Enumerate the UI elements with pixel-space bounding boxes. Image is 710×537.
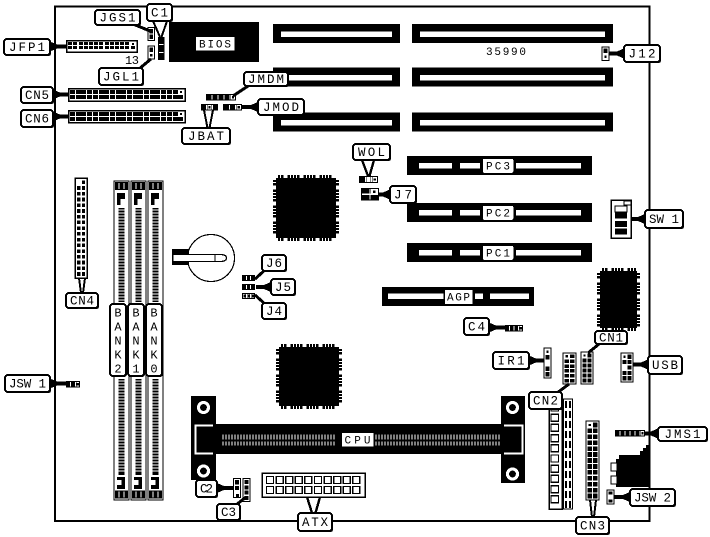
svg-text:CN2: CN2 [533, 395, 558, 409]
svg-text:ATX: ATX [302, 516, 328, 530]
svg-text:C2: C2 [200, 483, 213, 497]
svg-text:CN5: CN5 [25, 89, 49, 103]
svg-text:2: 2 [114, 363, 121, 377]
svg-text:JBAT: JBAT [188, 130, 224, 144]
svg-text:K: K [150, 349, 158, 363]
svg-text:CPU: CPU [345, 436, 371, 448]
svg-text:JMDM: JMDM [248, 73, 284, 87]
svg-text:J4: J4 [266, 305, 282, 319]
svg-text:JFP1: JFP1 [9, 41, 45, 55]
svg-text:USB: USB [652, 359, 678, 373]
svg-text:J12: J12 [629, 48, 656, 62]
svg-text:A: A [114, 321, 122, 335]
svg-text:PC1: PC1 [486, 249, 510, 261]
svg-text:A: A [132, 321, 140, 335]
svg-text:1: 1 [132, 363, 139, 377]
svg-text:13: 13 [125, 54, 139, 68]
svg-text:CN6: CN6 [25, 113, 49, 127]
svg-text:SW 1: SW 1 [649, 213, 679, 227]
svg-text:N: N [114, 335, 121, 349]
svg-text:N: N [132, 335, 139, 349]
svg-text:B: B [132, 307, 139, 321]
svg-text:JMOD: JMOD [263, 101, 299, 115]
svg-text:JSW 2: JSW 2 [634, 492, 671, 506]
svg-text:C1: C1 [151, 7, 168, 21]
svg-text:WOL: WOL [358, 146, 385, 160]
svg-text:PC3: PC3 [486, 162, 510, 174]
svg-text:K: K [114, 349, 122, 363]
svg-text:K: K [132, 349, 140, 363]
svg-text:B: B [114, 307, 121, 321]
svg-text:35990: 35990 [486, 47, 526, 59]
svg-text:JMS1: JMS1 [665, 428, 701, 442]
svg-text:N: N [150, 335, 157, 349]
svg-text:BIOS: BIOS [199, 40, 231, 52]
svg-text:CN1: CN1 [599, 332, 623, 346]
svg-text:JGS1: JGS1 [100, 12, 136, 26]
svg-text:0: 0 [150, 363, 157, 377]
svg-text:AGP: AGP [447, 293, 470, 305]
svg-text:JGL1: JGL1 [103, 71, 139, 85]
svg-text:B: B [150, 307, 157, 321]
svg-text:JSW 1: JSW 1 [9, 378, 46, 392]
svg-text:C3: C3 [221, 506, 236, 520]
svg-text:CN3: CN3 [580, 520, 605, 534]
svg-text:CN4: CN4 [70, 295, 94, 309]
svg-text:PC2: PC2 [486, 209, 510, 221]
svg-text:IR1: IR1 [498, 355, 525, 369]
svg-text:C 4: C 4 [468, 321, 485, 335]
svg-text:J6: J6 [266, 257, 282, 271]
svg-text:J5: J5 [275, 281, 291, 295]
svg-text:A: A [150, 321, 158, 335]
